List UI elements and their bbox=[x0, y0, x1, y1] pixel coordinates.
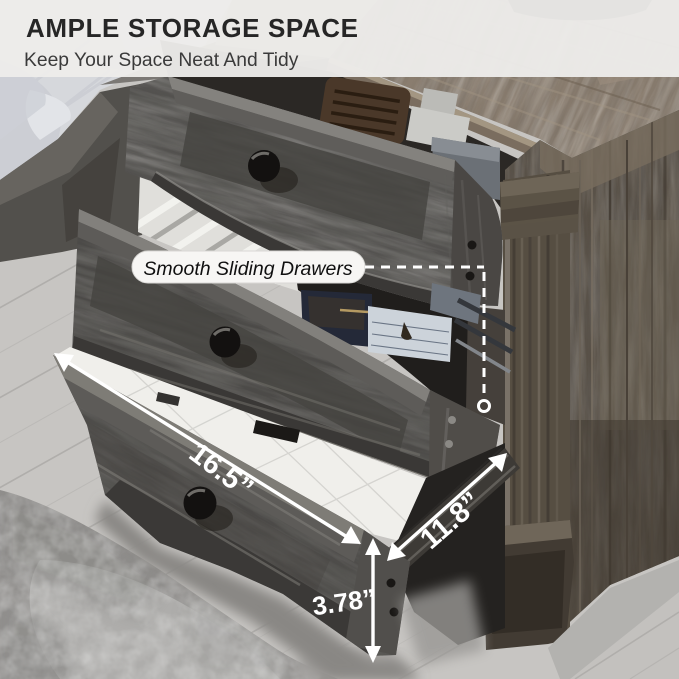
svg-text:AMPLE STORAGE SPACE: AMPLE STORAGE SPACE bbox=[26, 13, 359, 43]
svg-text:Smooth Sliding Drawers: Smooth Sliding Drawers bbox=[143, 258, 352, 280]
svg-text:Keep Your Space Neat And Tidy: Keep Your Space Neat And Tidy bbox=[24, 50, 299, 71]
